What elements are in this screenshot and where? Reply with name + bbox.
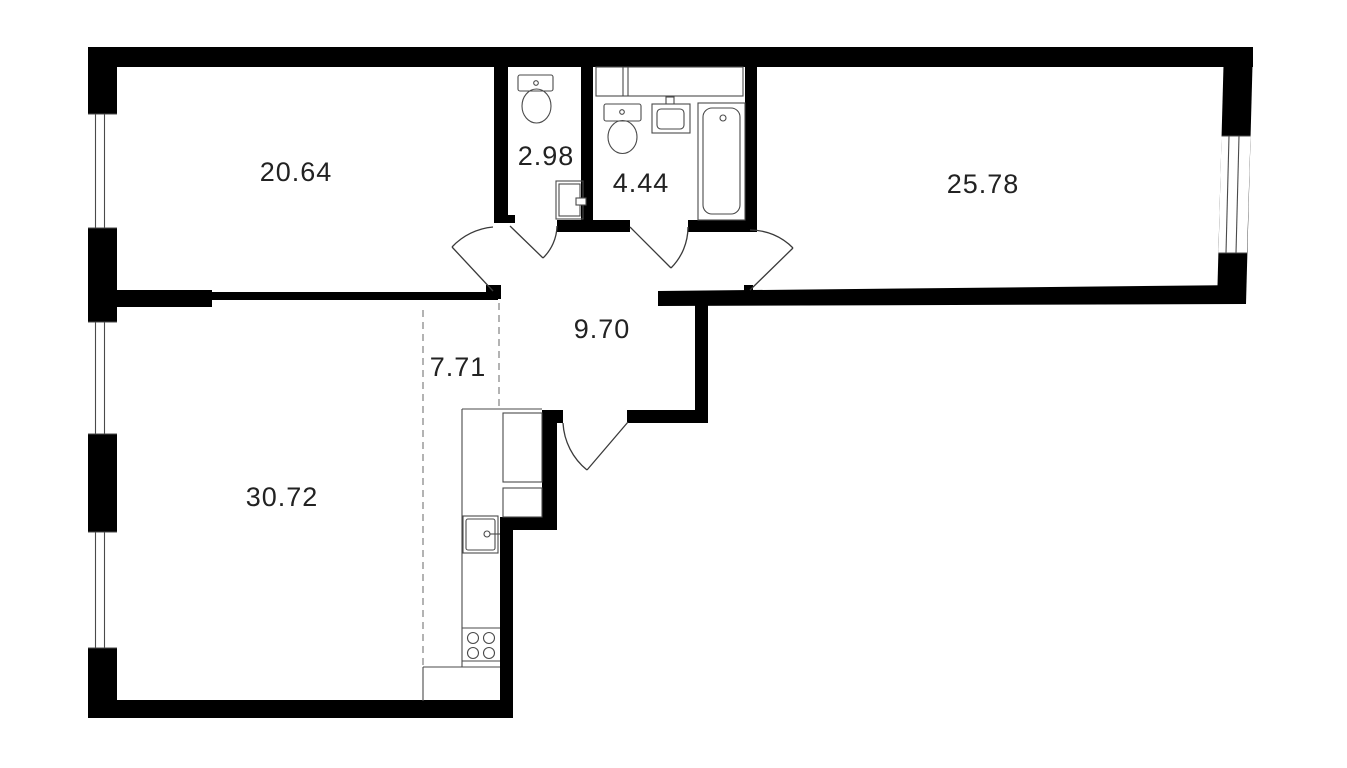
door-room-top-right (750, 230, 793, 290)
room-area-label-bathroom: 4.44 (613, 168, 670, 198)
door-wc (510, 226, 557, 258)
kitchen-fixtures (423, 409, 542, 701)
room-area-label-hallway: 9.70 (574, 314, 631, 344)
room-area-label-kitchen: 7.71 (430, 352, 487, 382)
door-bathroom (630, 227, 688, 268)
interior-walls (88, 47, 1246, 702)
window-left-1 (88, 114, 117, 228)
wall-top (88, 47, 1253, 67)
window-left-3 (88, 532, 117, 648)
wall-room1-living-thick (88, 290, 212, 307)
exterior-walls (88, 47, 1253, 718)
bathtub (698, 103, 745, 220)
floor-plan: 20.64 2.98 4.44 25.78 9.70 7.71 30.72 (0, 0, 1347, 768)
room-labels: 20.64 2.98 4.44 25.78 9.70 7.71 30.72 (246, 141, 1020, 512)
wall-room1-wc-foot (503, 215, 515, 223)
wall-room1-wc (494, 47, 508, 223)
wall-room1-living-thin (212, 292, 498, 300)
kitchen-cabinets (503, 413, 542, 517)
room-area-label-wc: 2.98 (518, 141, 575, 171)
floor-plan-page: 20.64 2.98 4.44 25.78 9.70 7.71 30.72 (0, 0, 1347, 768)
wall-kitchen-right-upper (542, 410, 557, 517)
kitchen-counter (423, 409, 542, 701)
room-area-label-living: 30.72 (246, 482, 319, 512)
wall-hallway-bottom (627, 410, 708, 423)
wall-hallway-right-vertical (695, 304, 708, 423)
door-hinge-block-room1 (486, 285, 501, 299)
window-right (1219, 136, 1251, 253)
wall-wc-bottom (557, 220, 630, 232)
kitchen-sink (463, 516, 500, 553)
wall-kitchen-jog (500, 517, 557, 530)
door-living-room (563, 422, 628, 470)
wall-bathroom-right (745, 67, 757, 232)
wall-kitchen-right-lower (500, 530, 513, 702)
window-left-2 (88, 322, 117, 434)
kitchen-stove (462, 628, 500, 661)
bathroom-sink (652, 97, 690, 133)
door-room-top-left (452, 227, 493, 291)
wall-bottom (88, 700, 513, 718)
room-area-label-top-right: 25.78 (947, 169, 1020, 199)
room-area-label-top-left: 20.64 (260, 157, 333, 187)
ventilation-shaft (596, 67, 743, 96)
bathroom-toilet (604, 104, 641, 154)
wc-toilet (518, 75, 553, 123)
